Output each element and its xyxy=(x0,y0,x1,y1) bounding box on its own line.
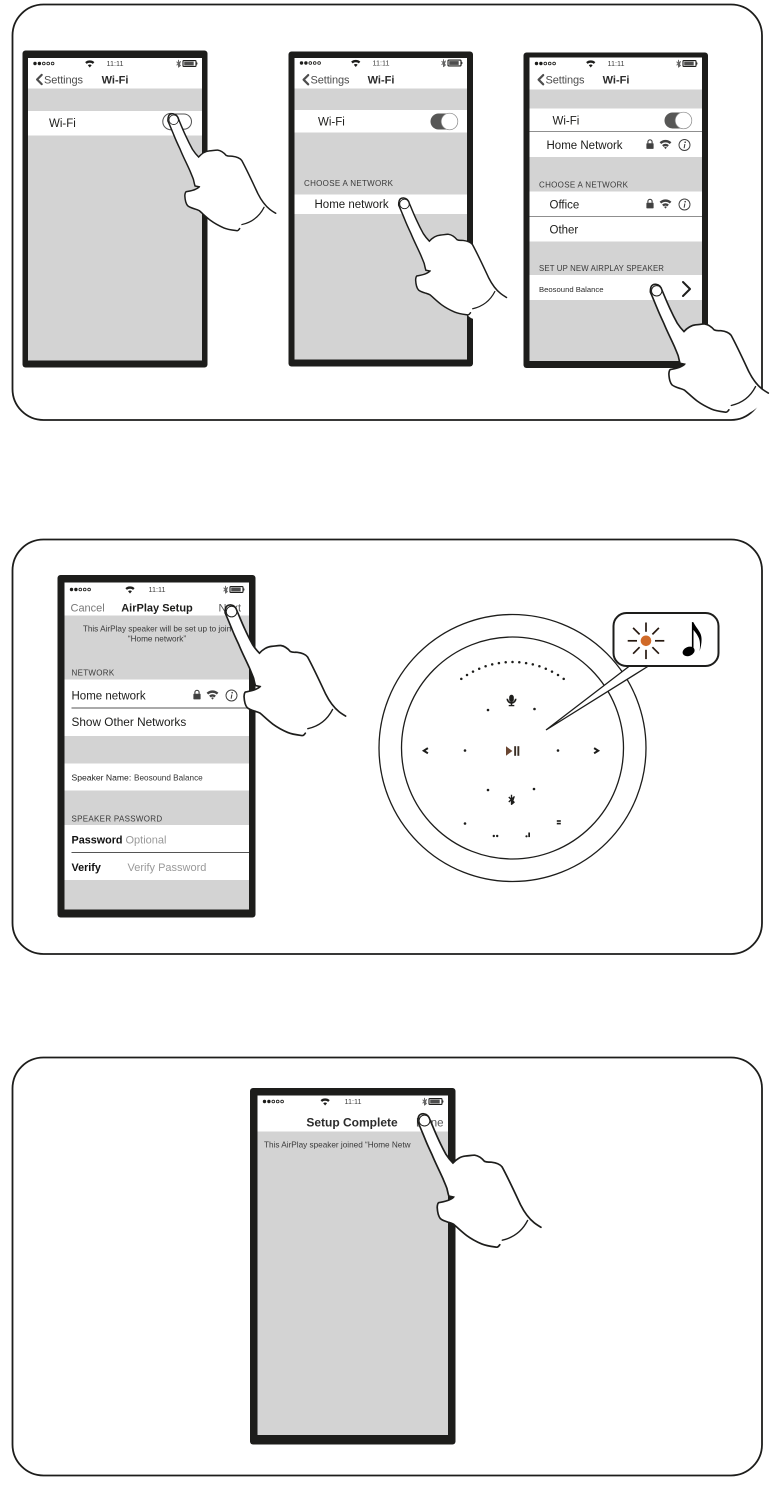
svg-text:Beosound Balance: Beosound Balance xyxy=(134,774,203,783)
svg-text:Wi-Fi: Wi-Fi xyxy=(553,116,580,128)
svg-text:11:11: 11:11 xyxy=(373,59,390,68)
svg-text:Settings: Settings xyxy=(311,75,351,87)
svg-text:Cancel: Cancel xyxy=(71,603,105,615)
svg-text:Settings: Settings xyxy=(44,75,84,87)
svg-text:NETWORK: NETWORK xyxy=(72,669,115,678)
svg-text:Home network: Home network xyxy=(315,199,389,211)
svg-text:This AirPlay speaker will be s: This AirPlay speaker will be set up to j… xyxy=(83,625,232,634)
svg-text:Optional: Optional xyxy=(126,835,167,847)
svg-text:Wi-Fi: Wi-Fi xyxy=(368,75,395,87)
svg-text:Verify: Verify xyxy=(72,862,101,874)
svg-text:Home network: Home network xyxy=(72,691,146,703)
svg-text:Wi-Fi: Wi-Fi xyxy=(49,118,76,130)
svg-text:Password: Password xyxy=(72,835,123,847)
svg-text:CHOOSE A NETWORK: CHOOSE A NETWORK xyxy=(304,179,394,188)
svg-text:Setup Complete: Setup Complete xyxy=(306,1116,398,1130)
svg-text:Home Network: Home Network xyxy=(547,140,623,152)
svg-text:This AirPlay speaker joined “H: This AirPlay speaker joined “Home Netw xyxy=(264,1141,411,1150)
svg-text:SET UP NEW AIRPLAY SPEAKER: SET UP NEW AIRPLAY SPEAKER xyxy=(539,264,664,273)
svg-text:Wi-Fi: Wi-Fi xyxy=(603,75,630,87)
svg-text:Office: Office xyxy=(550,200,580,212)
svg-text:“Home network”: “Home network” xyxy=(128,635,187,644)
svg-text:CHOOSE A NETWORK: CHOOSE A NETWORK xyxy=(539,181,629,190)
svg-text:Beosound Balance: Beosound Balance xyxy=(539,285,604,294)
svg-text:Settings: Settings xyxy=(546,75,586,87)
svg-text:11:11: 11:11 xyxy=(345,1097,362,1106)
svg-text:AirPlay Setup: AirPlay Setup xyxy=(121,603,193,615)
svg-text:Verify Password: Verify Password xyxy=(128,862,207,874)
svg-text:11:11: 11:11 xyxy=(107,59,124,68)
svg-text:SPEAKER PASSWORD: SPEAKER PASSWORD xyxy=(72,815,163,824)
svg-text:Show Other Networks: Show Other Networks xyxy=(72,715,187,729)
svg-text:11:11: 11:11 xyxy=(149,585,166,594)
svg-text:Wi-Fi: Wi-Fi xyxy=(102,75,129,87)
svg-text:11:11: 11:11 xyxy=(608,59,625,68)
svg-text:Wi-Fi: Wi-Fi xyxy=(318,117,345,129)
svg-text:Other: Other xyxy=(550,225,579,237)
svg-text:Speaker Name:: Speaker Name: xyxy=(72,773,132,783)
